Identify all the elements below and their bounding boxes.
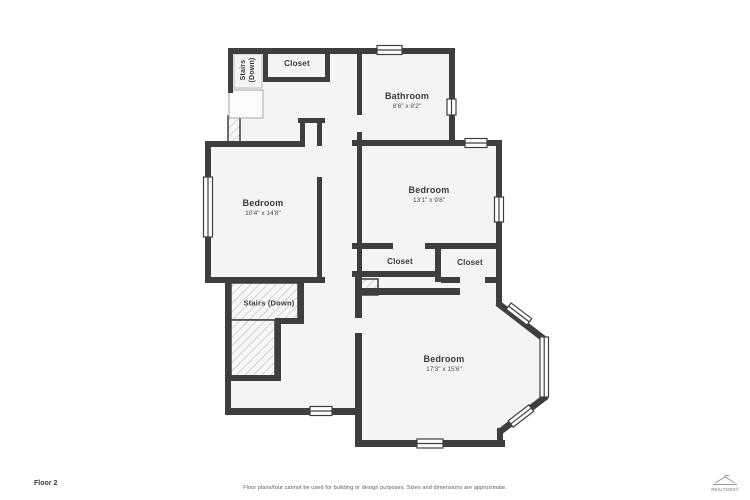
bathroom-dims: 8'6" x 8'2" bbox=[385, 103, 429, 111]
floorplan-drawing bbox=[0, 0, 750, 500]
realtor-logo: REALTORS® bbox=[705, 474, 745, 496]
label-bathroom: Bathroom 8'6" x 8'2" bbox=[385, 91, 429, 111]
label-stairs-top: Stairs (Down) bbox=[239, 51, 257, 89]
bedroom-left-dims: 10'4" x 14'8" bbox=[243, 210, 284, 218]
bedroom-bottom-name: Bedroom bbox=[424, 354, 465, 365]
disclaimer-text: Floor plans/tour cannot be used for buil… bbox=[0, 485, 750, 491]
bedroom-bottom-dims: 17'3" x 15'6" bbox=[424, 366, 465, 374]
stairs-mid-name: Stairs (Down) bbox=[244, 298, 295, 307]
label-closet-right: Closet bbox=[457, 258, 483, 268]
bedroom-right-dims: 13'1" x 9'8" bbox=[409, 197, 450, 205]
label-bedroom-left: Bedroom 10'4" x 14'8" bbox=[243, 198, 284, 218]
label-bedroom-bottom: Bedroom 17'3" x 15'6" bbox=[424, 354, 465, 374]
bathroom-name: Bathroom bbox=[385, 91, 429, 102]
roof-icon bbox=[713, 475, 737, 485]
label-closet-left: Closet bbox=[387, 257, 413, 267]
closet-top-name: Closet bbox=[284, 59, 310, 69]
label-closet-top: Closet bbox=[284, 59, 310, 69]
bedroom-right-name: Bedroom bbox=[409, 185, 450, 196]
floorplan-page: Bathroom 8'6" x 8'2" Bedroom 10'4" x 14'… bbox=[0, 0, 750, 500]
stairs-top-name: Stairs (Down) bbox=[239, 51, 257, 89]
bedroom-left-name: Bedroom bbox=[243, 198, 284, 209]
closet-right-name: Closet bbox=[457, 258, 483, 268]
closet-left-name: Closet bbox=[387, 257, 413, 267]
label-bedroom-right: Bedroom 13'1" x 9'8" bbox=[409, 185, 450, 205]
realtor-logo-text: REALTORS® bbox=[711, 487, 739, 492]
label-stairs-mid: Stairs (Down) bbox=[244, 298, 295, 307]
